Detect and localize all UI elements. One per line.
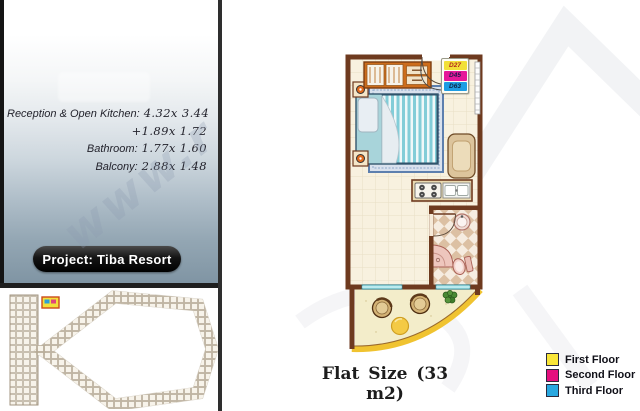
legend-item: First Floor: [546, 352, 635, 368]
vertical-divider: [218, 0, 222, 411]
dimension-list: Reception & Open Kitchen:4.32x 3.44 +1.8…: [7, 104, 207, 174]
floor-legend: First Floor Second Floor Third Floor: [546, 352, 635, 399]
balcony-plant: [443, 290, 457, 303]
legend-label: First Floor: [565, 354, 619, 366]
kitchen-counter: [412, 180, 472, 201]
panel-highlight: [58, 72, 150, 102]
pillow: [358, 98, 378, 132]
dimension-row: +1.89x 1.72: [7, 122, 207, 140]
balcony-left-wall: [350, 287, 355, 349]
legend-label: Second Floor: [565, 369, 635, 381]
dimension-label: Bathroom:: [87, 143, 138, 155]
dimension-value: 4.32x 3.44: [144, 106, 209, 120]
nightstand: [353, 151, 368, 166]
dimension-value: 2.88x 1.48: [142, 159, 207, 173]
brochure-page: Reception & Open Kitchen:4.32x 3.44 +1.8…: [0, 0, 640, 411]
flat-size-label: Flat Size (33 m2): [299, 364, 471, 404]
kitchen-sink: [443, 183, 470, 198]
unit-floor-tags: D27 D45 D63: [441, 58, 469, 94]
left-info-panel: Reception & Open Kitchen:4.32x 3.44 +1.8…: [0, 0, 218, 287]
panel-left-border: [0, 0, 4, 287]
stove: [415, 183, 441, 198]
unit-tag-second-floor: D45: [444, 71, 467, 81]
unit-tag-first-floor: D27: [444, 61, 467, 71]
dimension-value: 1.77x 1.60: [142, 141, 207, 155]
project-label-pill: Project: Tiba Resort: [33, 246, 181, 272]
project-label: Project: Tiba Resort: [42, 252, 171, 267]
first-floor-swatch: [546, 353, 559, 366]
unit-tag-third-floor: D63: [444, 82, 467, 92]
dimension-label: Reception & Open Kitchen:: [7, 108, 140, 120]
dimension-row: Reception & Open Kitchen:4.32x 3.44: [7, 104, 207, 122]
selected-unit-marker: [42, 297, 59, 308]
dimension-label: Balcony:: [95, 161, 137, 173]
second-floor-swatch: [546, 369, 559, 382]
resort-ring: [36, 297, 212, 405]
third-floor-swatch: [546, 384, 559, 397]
balcony-table: [392, 318, 409, 335]
dimension-row: Balcony:2.88x 1.48: [7, 157, 207, 175]
legend-label: Third Floor: [565, 385, 623, 397]
legend-item: Third Floor: [546, 383, 635, 399]
dimension-value: +1.89x 1.72: [132, 124, 207, 138]
panel-bottom-border: [0, 283, 218, 288]
left-building: [10, 295, 38, 405]
armchair: [448, 134, 475, 178]
dimension-row: Bathroom:1.77x 1.60: [7, 139, 207, 157]
window: [475, 62, 480, 114]
bathroom-basin: [454, 214, 470, 230]
site-plan-thumbnail: [2, 289, 220, 409]
legend-item: Second Floor: [546, 368, 635, 384]
